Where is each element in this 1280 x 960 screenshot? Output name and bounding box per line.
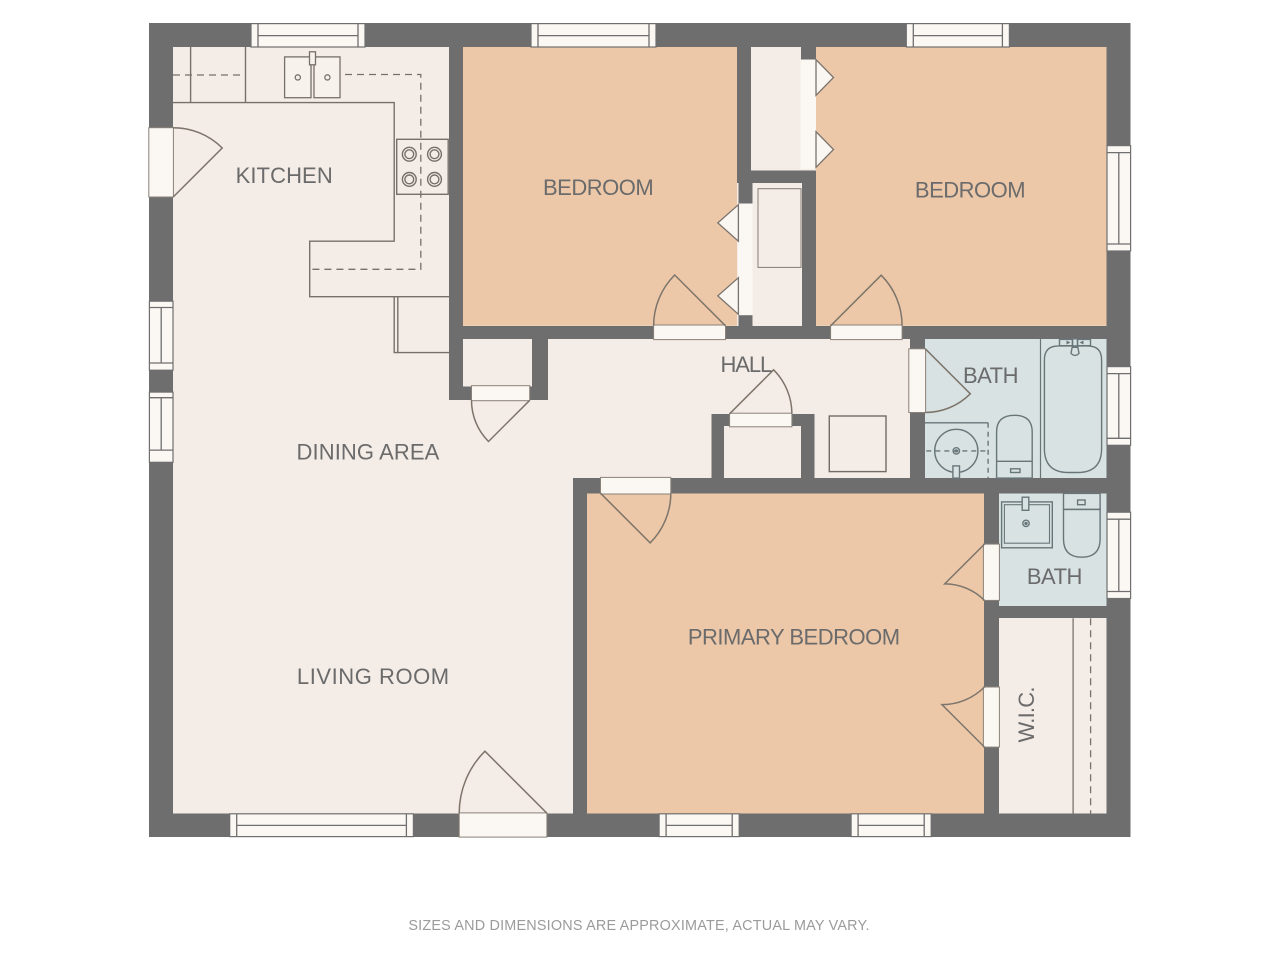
svg-text:PRIMARY BEDROOM: PRIMARY BEDROOM: [688, 624, 900, 649]
svg-text:BATH: BATH: [1027, 564, 1082, 589]
svg-text:KITCHEN: KITCHEN: [236, 163, 333, 188]
svg-text:SIZES AND DIMENSIONS ARE APPRO: SIZES AND DIMENSIONS ARE APPROXIMATE, AC…: [408, 918, 869, 934]
svg-text:W.I.C.: W.I.C.: [1014, 687, 1039, 742]
svg-text:BATH: BATH: [963, 363, 1018, 388]
svg-text:BEDROOM: BEDROOM: [915, 177, 1025, 202]
svg-text:LIVING ROOM: LIVING ROOM: [297, 664, 450, 689]
svg-text:DINING AREA: DINING AREA: [297, 439, 440, 464]
svg-text:BEDROOM: BEDROOM: [543, 175, 653, 200]
svg-text:HALL: HALL: [720, 352, 771, 377]
